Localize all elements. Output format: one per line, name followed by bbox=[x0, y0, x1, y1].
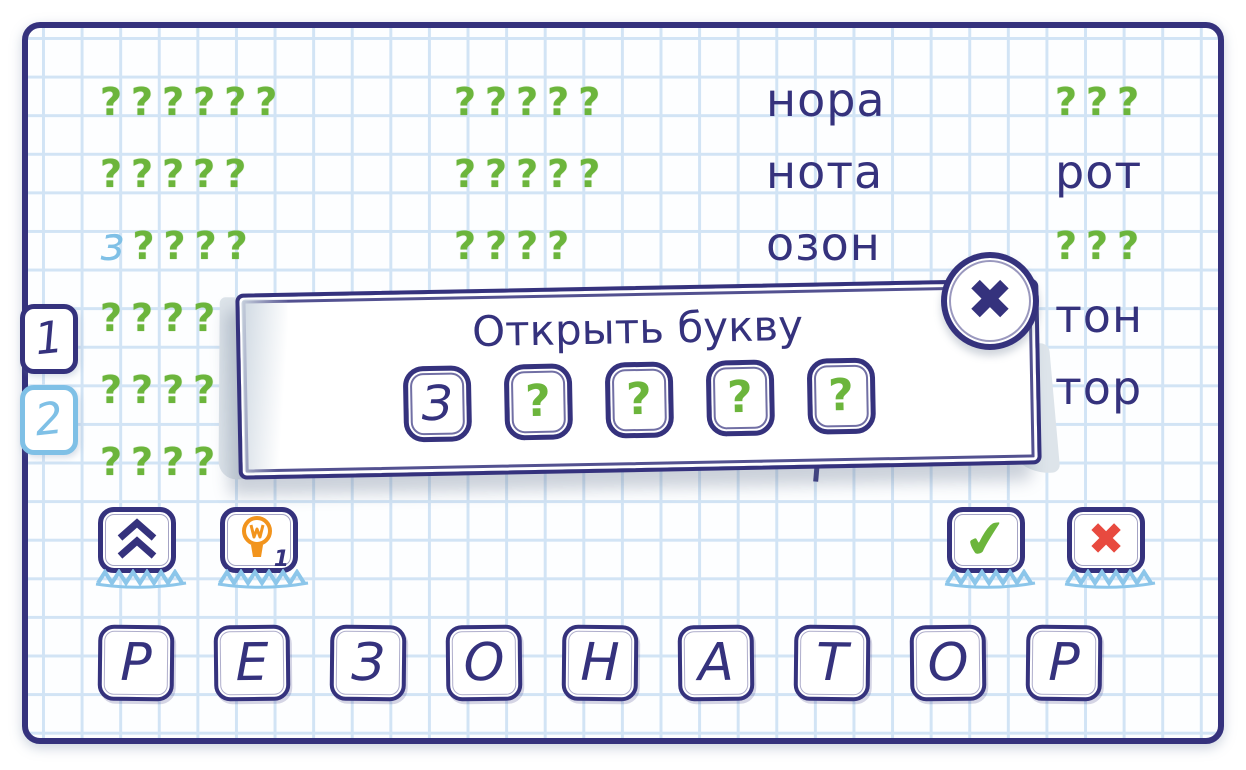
hidden-letter-qmark: ? bbox=[193, 371, 215, 409]
letter-slot-revealed[interactable]: З bbox=[402, 365, 471, 442]
notebook-frame: ???????????з??????????????????? ????????… bbox=[22, 22, 1224, 744]
hidden-letter-qmark: ? bbox=[162, 83, 184, 121]
button-base-zigzag bbox=[944, 569, 1036, 589]
revealed-word: тон bbox=[1055, 275, 1148, 347]
word-column: ?????????????? bbox=[454, 59, 609, 275]
letter-tile-label: З bbox=[351, 637, 385, 689]
page-tab-2-label: 2 bbox=[33, 397, 65, 444]
letter-tile-label: Р bbox=[1048, 637, 1080, 689]
hidden-letter-qmark: ? bbox=[224, 155, 246, 193]
close-dialog-button[interactable]: ✖ bbox=[941, 252, 1039, 350]
hidden-word: ????? bbox=[100, 131, 286, 203]
confirm-word-button[interactable]: ✔ bbox=[947, 507, 1025, 573]
hidden-letter-qmark: ? bbox=[255, 83, 277, 121]
slot-letter: З bbox=[421, 380, 453, 429]
letter-tile-label: О bbox=[463, 637, 504, 689]
letter-tile-label: О bbox=[927, 637, 968, 689]
revealed-word: нора bbox=[766, 59, 886, 131]
hidden-letter-qmark: ? bbox=[224, 83, 246, 121]
letter-slot-hidden[interactable]: ? bbox=[503, 363, 572, 440]
letter-slot-hidden[interactable]: ? bbox=[806, 357, 875, 434]
revealed-word: озон bbox=[766, 203, 886, 275]
hidden-letter-qmark: ? bbox=[100, 371, 122, 409]
page-tab-2[interactable]: 2 bbox=[20, 385, 78, 455]
letter-tiles: РЕЗОНАТОР bbox=[98, 625, 1102, 701]
page-tab-1[interactable]: 1 bbox=[20, 304, 78, 374]
revealed-word-text: нота bbox=[766, 152, 883, 193]
hidden-letter-qmark: ? bbox=[1055, 227, 1077, 265]
revealed-word-text: тон bbox=[1055, 296, 1143, 337]
button-base-zigzag bbox=[95, 569, 187, 589]
hidden-letter-qmark: ? bbox=[193, 443, 215, 481]
letter-tile[interactable]: О bbox=[446, 625, 523, 702]
hidden-letter-qmark: ? bbox=[485, 83, 507, 121]
paper-fold-shadow bbox=[241, 299, 290, 474]
hidden-letter-qmark: ? bbox=[132, 227, 154, 265]
letter-tile-label: Р bbox=[120, 637, 152, 689]
letter-slots: З???? bbox=[241, 354, 1037, 445]
revealed-letter: з bbox=[100, 224, 124, 265]
hidden-letter-qmark: ? bbox=[454, 155, 476, 193]
hidden-letter-qmark: ? bbox=[485, 155, 507, 193]
word-column: ???рот???тонтор bbox=[1055, 59, 1148, 419]
hidden-letter-qmark: ? bbox=[516, 83, 538, 121]
letter-tile-label: А bbox=[698, 637, 734, 689]
hidden-letter-qmark: ? bbox=[516, 155, 538, 193]
page-tab-1-label: 1 bbox=[33, 316, 65, 363]
slot-qmark: ? bbox=[727, 376, 753, 420]
hidden-letter-qmark: ? bbox=[193, 155, 215, 193]
dialog-paper: Открыть букву З???? bbox=[235, 278, 1041, 479]
hidden-letter-qmark: ? bbox=[1086, 83, 1108, 121]
hidden-word: ??? bbox=[1055, 203, 1148, 275]
hidden-letter-qmark: ? bbox=[195, 227, 217, 265]
letter-tile[interactable]: З bbox=[330, 625, 407, 702]
revealed-word-text: нора bbox=[766, 80, 886, 121]
letter-tile[interactable]: Р bbox=[1026, 625, 1103, 702]
letter-tile[interactable]: Н bbox=[562, 625, 639, 702]
button-base-zigzag bbox=[1064, 569, 1156, 589]
hidden-letter-qmark: ? bbox=[131, 299, 153, 337]
hidden-letter-qmark: ? bbox=[131, 371, 153, 409]
letter-tile-label: Н bbox=[580, 637, 620, 689]
game-stage: ???????????з??????????????????? ????????… bbox=[28, 28, 1218, 738]
hidden-letter-qmark: ? bbox=[578, 155, 600, 193]
hidden-letter-qmark: ? bbox=[226, 227, 248, 265]
hidden-letter-qmark: ? bbox=[193, 299, 215, 337]
hidden-letter-qmark: ? bbox=[131, 443, 153, 481]
hidden-word: ????? bbox=[454, 131, 609, 203]
hidden-word: з???? bbox=[100, 203, 286, 275]
letter-tile[interactable]: Е bbox=[214, 625, 291, 702]
hidden-letter-qmark: ? bbox=[578, 83, 600, 121]
open-letter-dialog: Открыть букву З???? bbox=[235, 278, 1041, 479]
hidden-word: ???? bbox=[454, 203, 609, 275]
letter-tile-label: Е bbox=[235, 637, 268, 689]
hidden-word: ?????? bbox=[100, 59, 286, 131]
hidden-word: ????? bbox=[454, 59, 609, 131]
double-chevron-up-icon bbox=[111, 516, 163, 564]
letter-tile[interactable]: А bbox=[678, 625, 755, 702]
hidden-letter-qmark: ? bbox=[162, 299, 184, 337]
hidden-letter-qmark: ? bbox=[547, 227, 569, 265]
revealed-word: тор bbox=[1055, 347, 1148, 419]
hidden-letter-qmark: ? bbox=[162, 155, 184, 193]
hidden-letter-qmark: ? bbox=[485, 227, 507, 265]
letter-tile-label: Т bbox=[816, 637, 848, 689]
hidden-letter-qmark: ? bbox=[454, 83, 476, 121]
hidden-letter-qmark: ? bbox=[162, 443, 184, 481]
revealed-word: нота bbox=[766, 131, 886, 203]
hidden-letter-qmark: ? bbox=[193, 83, 215, 121]
button-base-zigzag bbox=[217, 569, 309, 589]
checkmark-icon: ✔ bbox=[961, 511, 1011, 569]
revealed-word-text: озон bbox=[766, 224, 881, 265]
letter-slot-hidden[interactable]: ? bbox=[705, 359, 774, 436]
hidden-letter-qmark: ? bbox=[100, 155, 122, 193]
letter-slot-hidden[interactable]: ? bbox=[604, 361, 673, 438]
hidden-letter-qmark: ? bbox=[100, 299, 122, 337]
revealed-word: рот bbox=[1055, 131, 1148, 203]
hint-count-badge: 1 bbox=[274, 547, 289, 572]
slot-qmark: ? bbox=[626, 378, 652, 422]
revealed-word-text: рот bbox=[1055, 152, 1142, 193]
hidden-letter-qmark: ? bbox=[1055, 83, 1077, 121]
hidden-letter-qmark: ? bbox=[547, 83, 569, 121]
hidden-word: ??? bbox=[1055, 59, 1148, 131]
clear-word-button[interactable]: ✖ bbox=[1067, 507, 1145, 573]
word-column: норанотаозон bbox=[766, 59, 886, 275]
close-x-icon: ✖ bbox=[967, 273, 1014, 329]
hidden-letter-qmark: ? bbox=[164, 227, 186, 265]
slot-qmark: ? bbox=[828, 374, 854, 418]
hidden-letter-qmark: ? bbox=[516, 227, 538, 265]
hidden-letter-qmark: ? bbox=[547, 155, 569, 193]
letter-tile[interactable]: Т bbox=[794, 625, 871, 702]
hidden-letter-qmark: ? bbox=[100, 443, 122, 481]
letter-tile[interactable]: О bbox=[910, 625, 987, 702]
hidden-letter-qmark: ? bbox=[131, 83, 153, 121]
collapse-keyboard-button[interactable] bbox=[98, 507, 176, 573]
hint-button[interactable]: 1 bbox=[220, 507, 298, 573]
hidden-letter-qmark: ? bbox=[162, 371, 184, 409]
letter-tile[interactable]: Р bbox=[98, 625, 175, 702]
hidden-letter-qmark: ? bbox=[131, 155, 153, 193]
red-cross-icon: ✖ bbox=[1088, 518, 1125, 562]
hidden-letter-qmark: ? bbox=[1117, 83, 1139, 121]
slot-qmark: ? bbox=[525, 380, 551, 424]
hidden-letter-qmark: ? bbox=[454, 227, 476, 265]
revealed-word-text: тор bbox=[1055, 368, 1142, 409]
hidden-letter-qmark: ? bbox=[1117, 227, 1139, 265]
hidden-letter-qmark: ? bbox=[1086, 227, 1108, 265]
dialog-title: Открыть букву bbox=[240, 296, 1036, 360]
hidden-letter-qmark: ? bbox=[100, 83, 122, 121]
